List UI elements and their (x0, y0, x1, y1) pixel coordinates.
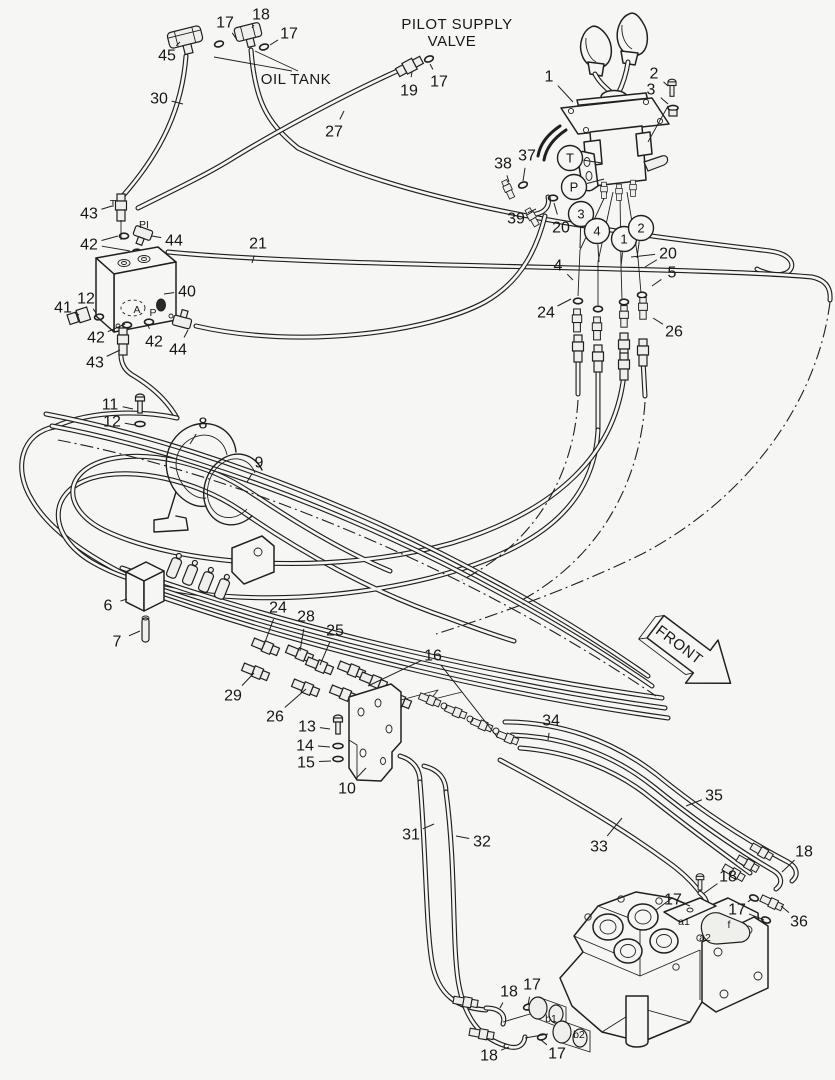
port-label: T (110, 198, 117, 210)
callout-label: 43 (86, 355, 104, 372)
diagram-canvas: FRONT PILOT SUPPLY VALVE OIL TANK 171817… (0, 0, 835, 1080)
callout-label: 16 (424, 648, 442, 665)
joystick-assembly (538, 13, 678, 200)
leader-line (320, 728, 330, 729)
callout-label: 38 (494, 156, 512, 173)
port-label: P (149, 307, 156, 319)
callout-label: 42 (87, 330, 105, 347)
callout-label: 37 (518, 148, 536, 165)
callout-label: 24 (269, 600, 287, 617)
leader-line (703, 884, 717, 894)
leader-line (558, 299, 571, 306)
callout-label: 27 (325, 124, 343, 141)
port-label: a1 (678, 916, 690, 928)
callout-label: 44 (169, 342, 187, 359)
callout-label: 39 (507, 211, 525, 228)
leader-line (567, 274, 573, 280)
callout-label: 45 (158, 48, 176, 65)
pilot-supply-valve-title-2: VALVE (428, 33, 477, 50)
callout-label: 17 (523, 977, 541, 994)
callout-label: 17 (664, 892, 682, 909)
callout-label: 7 (113, 634, 122, 651)
callout-label: 20 (659, 246, 677, 263)
callout-label: 26 (266, 709, 284, 726)
leader-line (102, 236, 118, 241)
port-label: A (133, 304, 140, 316)
callout-label: 18 (500, 984, 518, 1001)
oil-tank-label: OIL TANK (261, 71, 331, 88)
leader-line (430, 64, 433, 70)
port-label: a2 (699, 932, 711, 944)
circled-callout-label: 4 (593, 224, 600, 239)
callout-label: 21 (249, 236, 267, 253)
callout-label: 2 (650, 66, 659, 83)
callout-label: 15 (297, 755, 315, 772)
circled-callout-label: 3 (577, 207, 584, 222)
callout-label: 17 (216, 15, 234, 32)
leader-line (664, 82, 668, 86)
callout-label: 17 (548, 1046, 566, 1063)
leader-line (123, 407, 133, 409)
callout-label: 30 (150, 91, 168, 108)
port-label: PI (139, 219, 149, 231)
leader-line (242, 673, 254, 686)
leader-line (318, 746, 330, 747)
leader-line (631, 254, 655, 257)
leader-line (637, 241, 639, 258)
callout-label: 17 (728, 902, 746, 919)
leader-line (456, 836, 469, 839)
pilot-supply-valve-title: PILOT SUPPLY (401, 16, 512, 33)
callout-label: 4 (554, 258, 563, 275)
leader-line (125, 423, 135, 425)
callout-label: 10 (338, 781, 356, 798)
callout-label: 8 (199, 416, 208, 433)
callout-label: 31 (402, 827, 420, 844)
callout-label: 32 (473, 834, 491, 851)
leader-line (598, 244, 599, 262)
callout-label: 6 (104, 598, 113, 615)
leader-line (653, 318, 663, 324)
callout-label: 14 (296, 738, 314, 755)
port-label: b2 (573, 1029, 585, 1041)
callout-label: 36 (790, 914, 808, 931)
oil-tank-fittings (167, 22, 435, 78)
leader-line (285, 689, 306, 707)
circled-callout-label: T (566, 151, 574, 166)
callout-label: 17 (430, 74, 448, 91)
callout-label: 12 (103, 414, 121, 431)
callout-label: 33 (590, 839, 608, 856)
callout-label: 9 (255, 455, 264, 472)
callout-label: 28 (297, 609, 315, 626)
leader-line (523, 168, 525, 181)
callout-label: 17 (280, 26, 298, 43)
callout-label: 40 (178, 284, 196, 301)
leader-line (129, 631, 140, 636)
callout-label: 24 (537, 305, 555, 322)
pilot-hoses (22, 50, 830, 1047)
callout-label: 25 (326, 623, 344, 640)
callout-label: 26 (665, 324, 683, 341)
callout-label: 18 (719, 869, 737, 886)
circled-callout-label: 2 (637, 221, 644, 236)
front-arrow: FRONT (634, 602, 746, 705)
leader-line (661, 98, 668, 104)
callout-label: 29 (224, 688, 242, 705)
callout-label: 35 (705, 788, 723, 805)
callout-label: 42 (80, 237, 98, 254)
leader-line (107, 350, 120, 356)
leader-line (340, 111, 344, 119)
leader-line (645, 260, 657, 267)
leader-line (184, 330, 188, 337)
leader-line (102, 246, 130, 251)
callout-label: 19 (400, 83, 418, 100)
leader-line (781, 906, 789, 913)
leader-line (554, 203, 557, 215)
callout-label: 18 (252, 7, 270, 24)
leader-line (500, 1002, 503, 1008)
callout-label: 34 (542, 713, 560, 730)
callout-label: 41 (54, 300, 72, 317)
callout-label: 18 (480, 1048, 498, 1065)
circled-callout-label: 1 (620, 232, 627, 247)
callout-label: 18 (795, 844, 813, 861)
callout-label: 11 (102, 397, 119, 414)
callout-label: 5 (668, 265, 677, 282)
leader-line (558, 86, 573, 102)
port-label: f (728, 919, 731, 931)
callout-label: 43 (80, 206, 98, 223)
callout-label: 12 (77, 291, 95, 308)
leader-line (652, 279, 661, 286)
callout-label: 1 (545, 69, 554, 86)
callout-label: 13 (298, 719, 316, 736)
callout-label: 44 (165, 233, 183, 250)
callout-label: 20 (552, 220, 570, 237)
port-label: b1 (545, 1013, 557, 1025)
leader-line (541, 1040, 547, 1045)
callout-label: 3 (647, 82, 656, 99)
callout-label: 42 (145, 334, 163, 351)
leader-line (152, 236, 161, 238)
diagram-page: FRONT PILOT SUPPLY VALVE OIL TANK 171817… (0, 0, 835, 1080)
circled-callout-label: P (570, 180, 579, 195)
leader-line (270, 40, 278, 45)
leader-line (580, 227, 581, 248)
